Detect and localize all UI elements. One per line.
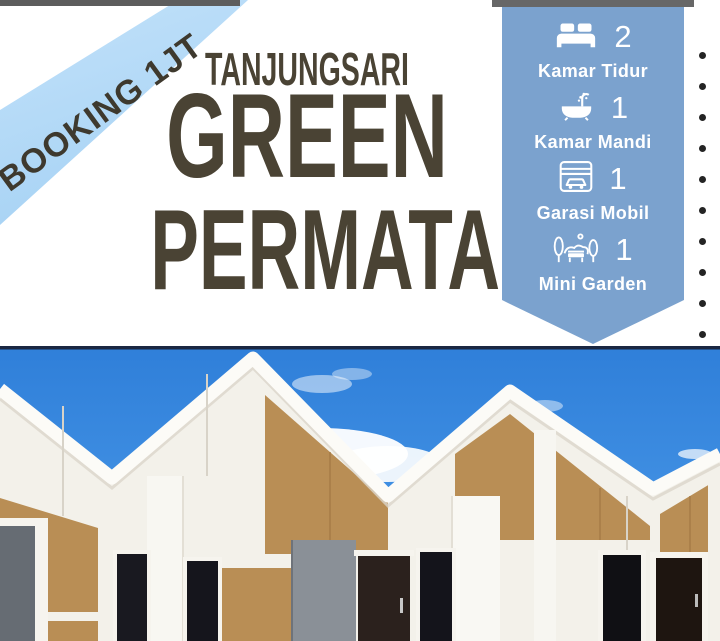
bullet-dot (699, 331, 706, 338)
feature-item-bedrooms: 2 Kamar Tidur (538, 14, 648, 85)
bullet-dot (699, 207, 706, 214)
garage-icon (559, 160, 593, 198)
bed-icon (554, 19, 598, 55)
garden-count: 1 (615, 232, 632, 268)
bathtub-icon (558, 90, 595, 126)
dark-window-left (117, 554, 147, 641)
bullet-dot (699, 238, 706, 245)
bullet-dot (699, 114, 706, 121)
house-photo (0, 346, 720, 641)
photo-top-edge (0, 346, 720, 350)
bedroom-label: Kamar Tidur (538, 61, 648, 82)
bedroom-count: 2 (614, 19, 631, 55)
garage-label: Garasi Mobil (537, 203, 650, 224)
bullet-dot (699, 300, 706, 307)
bathroom-count: 1 (611, 90, 628, 126)
bathroom-label: Kamar Mandi (534, 132, 651, 153)
feature-item-bathrooms: 1 Kamar Mandi (534, 85, 651, 156)
bullet-dot (699, 52, 706, 59)
dark-window-mid (420, 552, 452, 641)
bullet-dot (699, 83, 706, 90)
bullet-dot (699, 176, 706, 183)
top-bar-right (492, 0, 694, 7)
garden-label: Mini Garden (539, 274, 647, 295)
gray-panel (292, 540, 356, 641)
top-bar-left (0, 0, 240, 6)
feature-item-garage: 1 Garasi Mobil (537, 156, 650, 227)
feature-item-garden: 1 Mini Garden (539, 227, 647, 298)
title-block: TANJUNGSARI GREEN PERMATA (62, 0, 552, 300)
dark-door-right1 (603, 555, 641, 641)
features-panel: 2 Kamar Tidur 1 K (502, 6, 684, 344)
gray-window (0, 526, 35, 641)
dot-column (699, 52, 706, 338)
project-name-line1: GREEN (145, 76, 468, 196)
garage-count: 1 (609, 161, 626, 197)
bullet-dot (699, 269, 706, 276)
flyer-root: BOOKING 1JT TANJUNGSARI GREEN PERMATA 2 … (0, 0, 720, 641)
project-name-line2: PERMATA (150, 194, 464, 308)
bullet-dot (699, 145, 706, 152)
garden-icon (553, 231, 599, 270)
dark-window-left2 (187, 561, 218, 641)
